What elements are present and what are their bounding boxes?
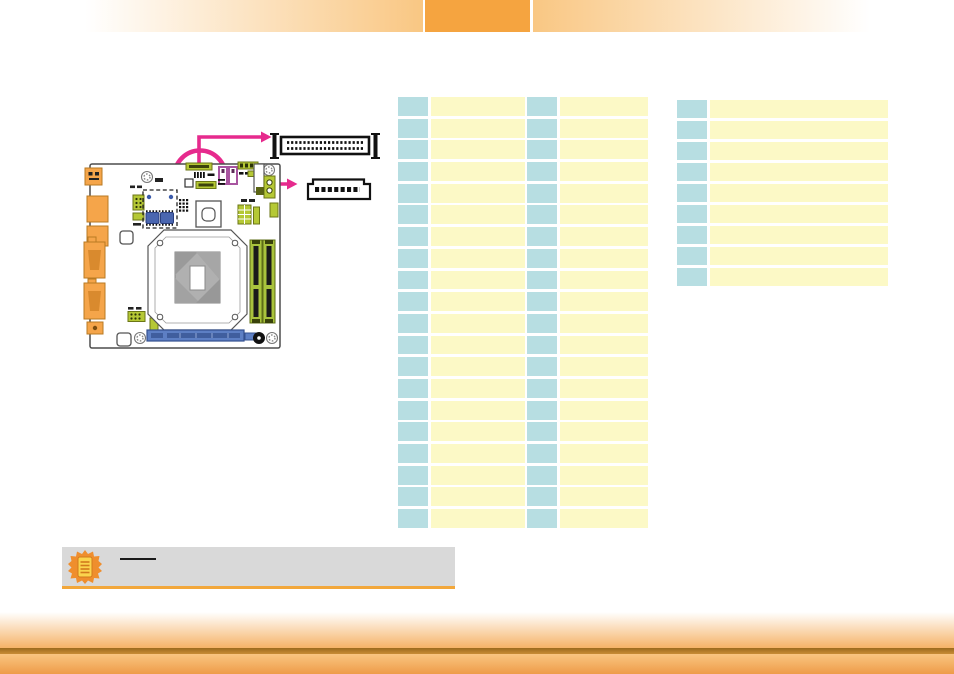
pin-table-cell-description (560, 444, 648, 463)
pin-table-cell-description (710, 142, 888, 160)
pin-table-row (398, 249, 648, 268)
pin-table-cell-description (560, 271, 648, 290)
pin-table-cell-pin-number (398, 97, 428, 116)
pin-table-cell-description (560, 422, 648, 441)
pin-table-cell-description (431, 422, 525, 441)
pin-table-cell-description (431, 249, 525, 268)
pin-table-cell-description (431, 487, 525, 506)
pin-table-row (677, 142, 888, 160)
pin-table-cell-description (560, 184, 648, 203)
pin-table-cell-pin-number (398, 227, 428, 246)
pin-table-cell-pin-number (398, 357, 428, 376)
mounting-hole-icon (135, 333, 146, 344)
pin-table-row (398, 119, 648, 138)
pin-table-row (398, 401, 648, 420)
pin-table-cell-pin-number (527, 509, 557, 528)
pin-table-cell-pin-number (527, 422, 557, 441)
pin-table-cell-pin-number (527, 401, 557, 420)
footer-strip (0, 654, 954, 674)
pin-table-cell-description (560, 140, 648, 159)
pin-table-cell-pin-number (677, 163, 707, 181)
pin-table-cell-pin-number (677, 100, 707, 118)
pin-table-cell-description (431, 162, 525, 181)
pin-assignment-table-left (398, 97, 648, 528)
cpu-socket (148, 230, 247, 330)
pin-table-cell-pin-number (398, 314, 428, 333)
pin-table-cell-description (560, 379, 648, 398)
pin-table-cell-pin-number (527, 184, 557, 203)
pin-table-cell-description (431, 401, 525, 420)
pin-table-cell-description (710, 247, 888, 265)
pin-table-cell-description (431, 271, 525, 290)
pin-table-cell-description (431, 97, 525, 116)
pin-table-row (677, 247, 888, 265)
pin-table-row (398, 357, 648, 376)
standoff (120, 231, 133, 244)
pin-table-cell-description (431, 444, 525, 463)
pin-table-cell-description (710, 268, 888, 286)
pcie-slot (147, 330, 256, 341)
pin-table-cell-pin-number (398, 336, 428, 355)
pin-table-row (398, 205, 648, 224)
single-row-pin-header-callout (308, 180, 370, 200)
pin-table-cell-pin-number (398, 140, 428, 159)
pin-table-cell-description (431, 292, 525, 311)
pin-table-cell-description (710, 121, 888, 139)
pin-table-cell-pin-number (527, 97, 557, 116)
pin-table-cell-description (560, 314, 648, 333)
pin-table-cell-description (710, 205, 888, 223)
pin-table-cell-pin-number (527, 249, 557, 268)
pin-table-cell-pin-number (398, 249, 428, 268)
pin-table-cell-pin-number (398, 379, 428, 398)
pin-table-cell-pin-number (677, 247, 707, 265)
pin-table-cell-description (431, 119, 525, 138)
pin-table-row (677, 163, 888, 181)
dimm-slot (250, 240, 262, 323)
pin-table-cell-description (560, 119, 648, 138)
pin-table-cell-description (560, 509, 648, 528)
pin-table-cell-description (431, 379, 525, 398)
pin-table-cell-pin-number (677, 142, 707, 160)
pin-table-cell-description (431, 205, 525, 224)
pin-table-cell-pin-number (527, 292, 557, 311)
header-bar-left (85, 0, 423, 32)
motherboard-diagram (80, 125, 390, 355)
pin-table-row (398, 184, 648, 203)
pin-table-row (677, 226, 888, 244)
standoff (117, 333, 131, 346)
pin-table-cell-description (710, 184, 888, 202)
pin-table-row (398, 422, 648, 441)
pin-table-cell-pin-number (677, 205, 707, 223)
pin-table-cell-description (560, 205, 648, 224)
pin-table-row (677, 268, 888, 286)
pin-table-row (398, 140, 648, 159)
pin-table-cell-pin-number (527, 487, 557, 506)
pin-table-cell-description (431, 336, 525, 355)
pin-table-cell-description (560, 227, 648, 246)
pin-table-cell-pin-number (398, 292, 428, 311)
mounting-hole-icon (142, 172, 153, 183)
pin-table-row (398, 314, 648, 333)
pin-table-cell-description (431, 357, 525, 376)
pin-table-cell-description (560, 466, 648, 485)
footer-gradient (0, 612, 954, 648)
pin-table-cell-pin-number (398, 119, 428, 138)
pin-table-row (398, 487, 648, 506)
pin-table-cell-pin-number (398, 401, 428, 420)
pin-table-cell-description (710, 100, 888, 118)
pin-table-cell-pin-number (527, 357, 557, 376)
chipset (196, 201, 221, 227)
pin-table-row (398, 336, 648, 355)
pin-table-cell-pin-number (527, 205, 557, 224)
pin-table-cell-description (560, 249, 648, 268)
pin-table-cell-description (560, 162, 648, 181)
pin-table-cell-pin-number (677, 268, 707, 286)
pin-table-row (398, 509, 648, 528)
pin-table-cell-description (560, 357, 648, 376)
pin-table-cell-description (560, 292, 648, 311)
pin-table-cell-description (560, 97, 648, 116)
pin-table-cell-description (431, 509, 525, 528)
pin-table-cell-pin-number (677, 121, 707, 139)
pin-table-cell-pin-number (527, 271, 557, 290)
pin-table-cell-pin-number (527, 444, 557, 463)
pin-table-cell-description (560, 401, 648, 420)
pin-table-cell-pin-number (677, 184, 707, 202)
pin-table-cell-pin-number (398, 487, 428, 506)
pin-table-row (398, 97, 648, 116)
pin-table-cell-pin-number (398, 162, 428, 181)
pin-table-cell-description (431, 314, 525, 333)
note-box (62, 547, 455, 589)
callout-arrow-top (199, 132, 272, 167)
note-heading-redacted (120, 558, 156, 560)
pin-table-cell-pin-number (527, 466, 557, 485)
pin-table-cell-pin-number (398, 509, 428, 528)
pin-table-row (398, 466, 648, 485)
pin-table-cell-pin-number (527, 140, 557, 159)
pin-table-row (677, 121, 888, 139)
pin-table-row (398, 444, 648, 463)
pin-table-cell-description (431, 466, 525, 485)
pin-table-cell-description (710, 163, 888, 181)
pin-table-cell-description (560, 336, 648, 355)
pin-table-cell-pin-number (398, 205, 428, 224)
header-bar-right (533, 0, 870, 32)
pin-table-row (398, 271, 648, 290)
pin-table-cell-description (431, 140, 525, 159)
pin-table-cell-pin-number (527, 227, 557, 246)
pin-table-cell-description (710, 226, 888, 244)
pin-table-row (398, 292, 648, 311)
pin-table-cell-pin-number (398, 184, 428, 203)
chapter-tab (425, 0, 530, 32)
dimm-slot (263, 240, 275, 323)
pin-table-cell-description (560, 487, 648, 506)
pin-table-row (398, 227, 648, 246)
pin-table-cell-pin-number (398, 444, 428, 463)
pin-table-row (398, 162, 648, 181)
pin-table-cell-pin-number (398, 422, 428, 441)
pin-table-cell-description (431, 227, 525, 246)
mounting-hole-icon (264, 165, 275, 176)
buzzer (253, 332, 265, 344)
pin-table-cell-pin-number (398, 271, 428, 290)
pin-assignment-table-right (677, 100, 888, 286)
manual-page (0, 0, 954, 674)
pin-table-cell-pin-number (527, 314, 557, 333)
pin-table-cell-pin-number (527, 119, 557, 138)
pin-table-row (677, 184, 888, 202)
note-burst-document-icon (68, 550, 102, 584)
dual-row-box-header-callout (270, 133, 380, 159)
pin-table-row (398, 379, 648, 398)
mounting-hole-icon (267, 333, 278, 344)
pin-table-cell-pin-number (527, 379, 557, 398)
pin-table-cell-pin-number (527, 162, 557, 181)
pin-table-cell-pin-number (677, 226, 707, 244)
pin-table-row (677, 100, 888, 118)
pin-table-cell-pin-number (398, 466, 428, 485)
sata-ports (218, 167, 237, 185)
pin-table-cell-description (431, 184, 525, 203)
pin-table-cell-pin-number (527, 336, 557, 355)
pin-table-row (677, 205, 888, 223)
